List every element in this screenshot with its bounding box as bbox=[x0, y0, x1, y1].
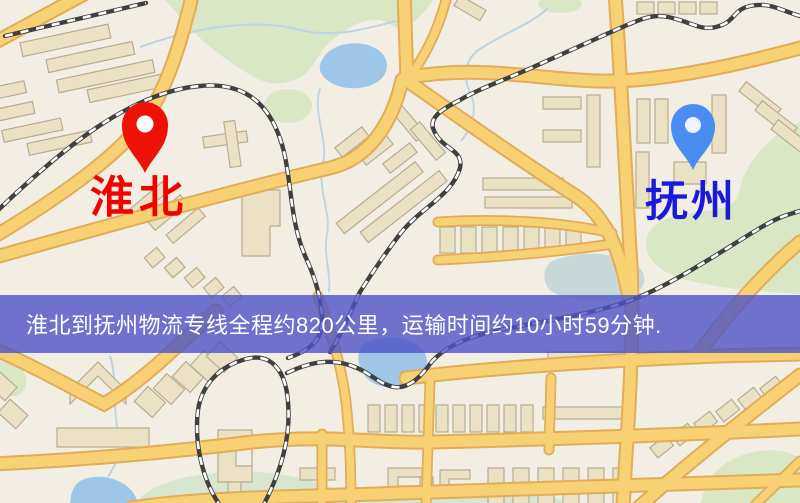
origin-pin-hole bbox=[137, 116, 154, 133]
map-canvas[interactable] bbox=[0, 0, 800, 503]
map-view[interactable]: 淮北 抚州 淮北到抚州物流专线全程约820公里，运输时间约10小时59分钟. bbox=[0, 0, 800, 503]
destination-city-label: 抚州 bbox=[645, 181, 737, 224]
destination-pin-hole bbox=[685, 117, 701, 133]
route-info-banner: 淮北到抚州物流专线全程约820公里，运输时间约10小时59分钟. bbox=[0, 295, 800, 353]
route-info-text: 淮北到抚州物流专线全程约820公里，运输时间约10小时59分钟. bbox=[0, 308, 662, 340]
origin-city-label: 淮北 bbox=[90, 176, 188, 220]
